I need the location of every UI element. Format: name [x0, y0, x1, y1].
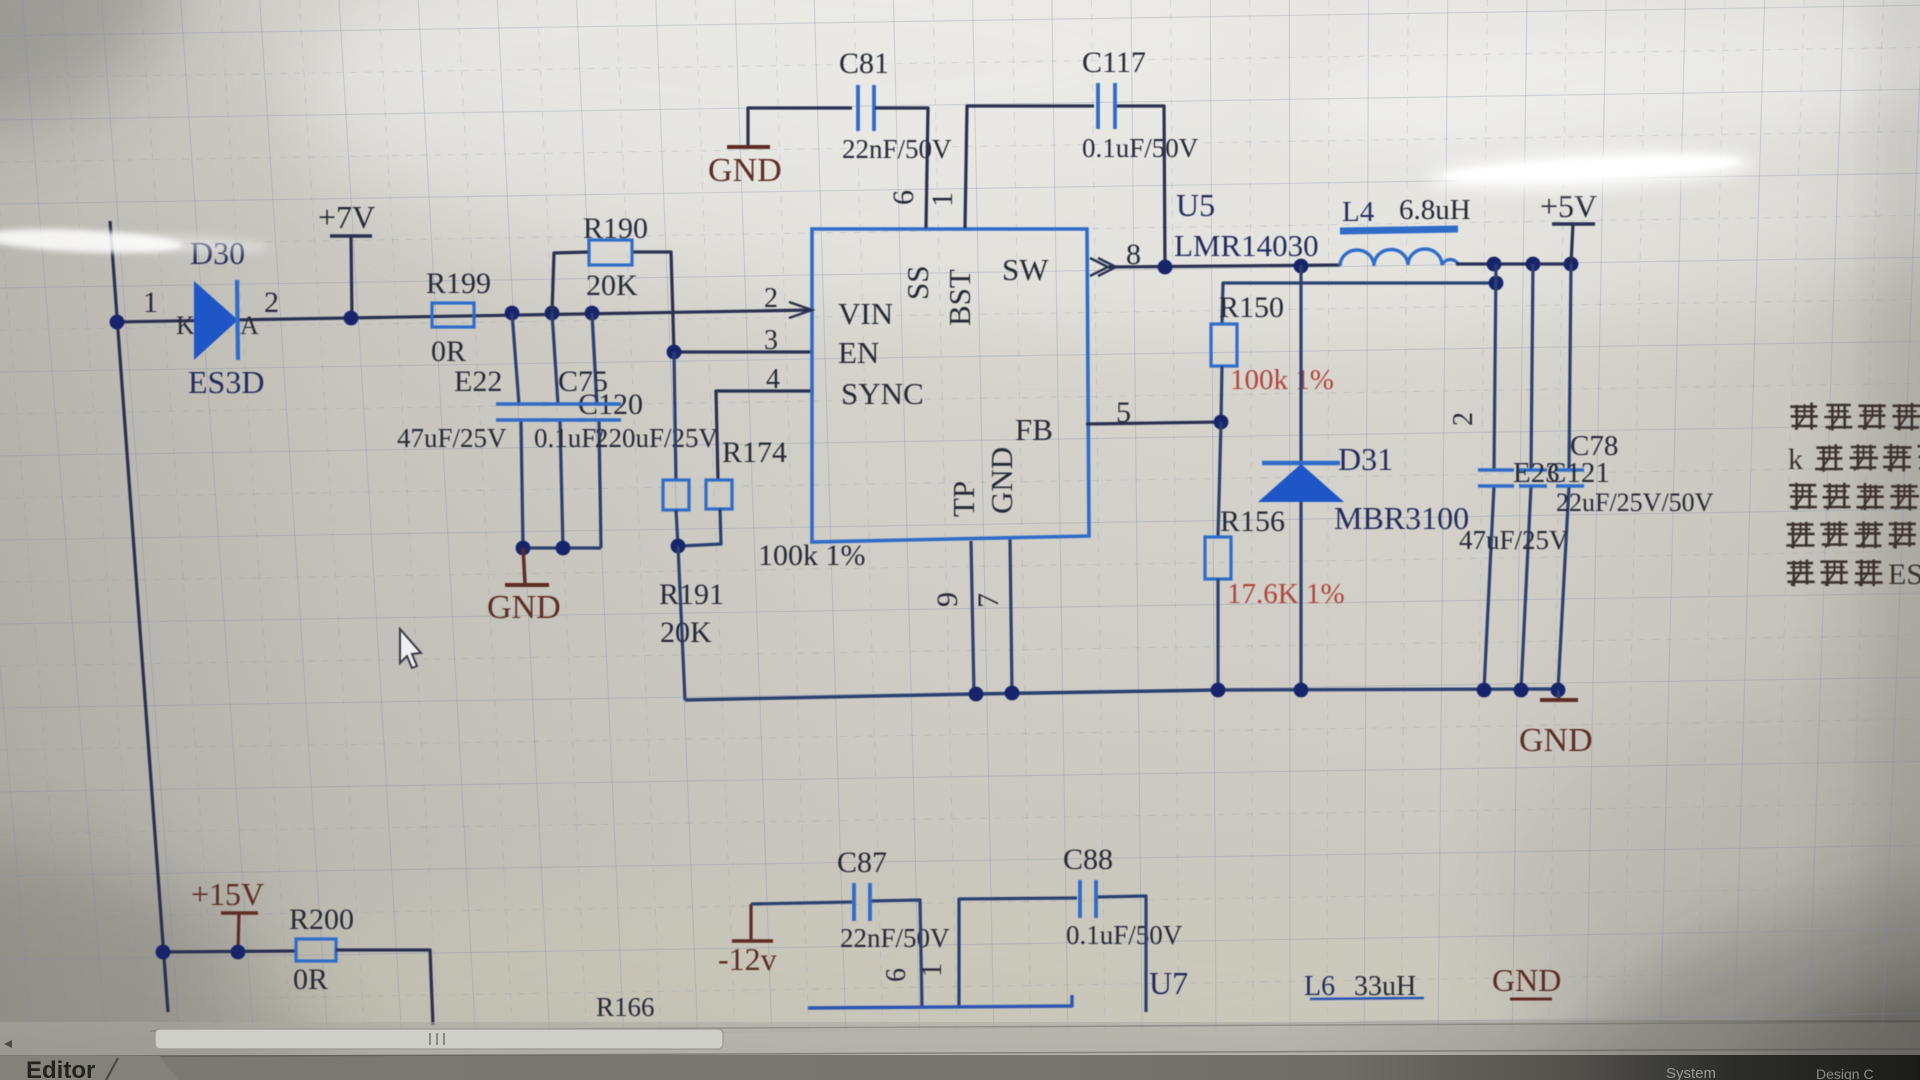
svg-text:SS: SS [900, 266, 935, 300]
svg-text:GND: GND [1492, 962, 1561, 998]
svg-text:System: System [1666, 1065, 1716, 1080]
svg-text:2: 2 [264, 286, 279, 319]
svg-text:BST: BST [942, 269, 977, 326]
svg-text:20K: 20K [586, 269, 638, 302]
svg-text:100k 1%: 100k 1% [1230, 364, 1334, 396]
svg-text:GND: GND [708, 152, 782, 189]
svg-text:17.6K 1%: 17.6K 1% [1227, 578, 1345, 610]
svg-text:47uF/25V: 47uF/25V [397, 423, 507, 453]
svg-text:22uF/25V/50V: 22uF/25V/50V [1556, 488, 1714, 517]
svg-text:C117: C117 [1082, 46, 1146, 79]
svg-text:2: 2 [1448, 412, 1479, 426]
svg-text:R150: R150 [1219, 291, 1284, 324]
svg-text:L6: L6 [1304, 971, 1335, 1002]
svg-text:K: K [176, 311, 195, 340]
svg-text:C87: C87 [837, 846, 887, 879]
svg-text:SYNC: SYNC [841, 376, 924, 411]
svg-text:U7: U7 [1149, 965, 1188, 1001]
svg-text:D31: D31 [1338, 441, 1393, 477]
svg-text:R191: R191 [659, 578, 724, 611]
svg-text:ES3D: ES3D [188, 364, 264, 400]
svg-text:R200: R200 [289, 903, 354, 936]
svg-text:LMR14030: LMR14030 [1174, 228, 1319, 263]
svg-text:220uF/25V: 220uF/25V [595, 423, 719, 453]
svg-text:3: 3 [764, 325, 778, 356]
svg-text:0.1uF/50V: 0.1uF/50V [1082, 133, 1199, 163]
svg-text:C81: C81 [839, 47, 889, 80]
svg-text:U5: U5 [1176, 187, 1215, 223]
svg-text:0R: 0R [293, 963, 328, 996]
svg-text:4: 4 [766, 364, 780, 395]
svg-text:SW: SW [1002, 252, 1049, 287]
svg-text:R199: R199 [426, 267, 491, 300]
svg-text:0.1uF/: 0.1uF/ [534, 423, 604, 453]
svg-text:-12v: -12v [718, 941, 777, 977]
svg-text:1: 1 [917, 963, 948, 977]
svg-text:E22: E22 [454, 365, 502, 398]
svg-text:Editor: Editor [26, 1057, 95, 1080]
svg-text:+5V: +5V [1540, 188, 1597, 224]
svg-text:ES: ES [1888, 558, 1920, 591]
svg-text:+15V: +15V [191, 876, 264, 912]
svg-text:L4: L4 [1342, 196, 1375, 228]
svg-text:GND: GND [487, 589, 561, 626]
svg-text:TP: TP [946, 481, 981, 517]
svg-text:100k 1%: 100k 1% [758, 539, 866, 572]
svg-text:1: 1 [143, 286, 158, 319]
svg-text:C88: C88 [1063, 843, 1113, 876]
svg-text:R174: R174 [722, 436, 787, 469]
svg-text:20K: 20K [660, 616, 712, 649]
svg-text:22nF/50V: 22nF/50V [842, 134, 952, 164]
svg-text:MBR3100: MBR3100 [1334, 500, 1469, 536]
svg-text:6: 6 [881, 968, 912, 982]
svg-text:GND: GND [1519, 722, 1593, 759]
svg-text:Design C: Design C [1816, 1066, 1874, 1080]
svg-text:0R: 0R [431, 335, 466, 368]
svg-text:6: 6 [887, 190, 920, 205]
svg-text:A: A [240, 311, 259, 340]
svg-text:k: k [1788, 443, 1803, 476]
svg-text:C121: C121 [1547, 457, 1610, 489]
svg-text:FB: FB [1015, 412, 1053, 447]
svg-text:1: 1 [926, 192, 959, 207]
svg-text:22nF/50V: 22nF/50V [840, 923, 950, 953]
svg-text:6.8uH: 6.8uH [1399, 194, 1471, 226]
svg-text:9: 9 [931, 592, 964, 607]
svg-text:R156: R156 [1220, 505, 1285, 538]
svg-text:7: 7 [972, 593, 1005, 608]
svg-text:EN: EN [838, 335, 879, 370]
svg-text:+7V: +7V [318, 199, 375, 235]
svg-text:47uF/25V: 47uF/25V [1459, 525, 1569, 555]
svg-text:2: 2 [764, 283, 778, 314]
svg-text:VIN: VIN [838, 296, 893, 331]
svg-text:0.1uF/50V: 0.1uF/50V [1066, 920, 1183, 950]
svg-text:GND: GND [984, 447, 1019, 514]
svg-text:R166: R166 [596, 992, 655, 1022]
